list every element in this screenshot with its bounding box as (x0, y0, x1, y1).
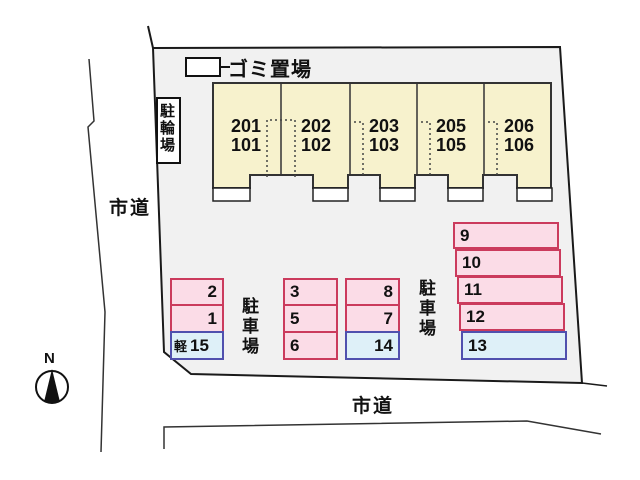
space-number: 7 (384, 309, 398, 329)
unit-lower-number: 105 (419, 136, 483, 155)
site-boundary-extension-top (148, 26, 153, 48)
entrance-porch (448, 188, 483, 201)
parking-space-5: 5 (283, 304, 338, 333)
unit-label-202-102: 202 102 (284, 117, 348, 155)
entrance-porch (213, 188, 250, 201)
unit-upper-number: 202 (284, 117, 348, 136)
parking-space-9: 9 (453, 222, 559, 249)
parking-space-11: 11 (457, 276, 563, 304)
road-edge-left-line (88, 59, 105, 452)
space-number: 11 (459, 280, 482, 300)
space-number: 14 (374, 336, 398, 356)
parking-lot-label-left: 駐車場 (240, 297, 257, 357)
space-number: 12 (461, 307, 485, 327)
unit-label-203-103: 203 103 (352, 117, 416, 155)
garbage-area-label: ゴミ置場 (228, 53, 312, 82)
unit-upper-number: 205 (419, 117, 483, 136)
unit-upper-number: 201 (214, 117, 278, 136)
space-number: 13 (463, 336, 487, 356)
space-number: 1 (208, 309, 222, 329)
parking-space-13: 13 (461, 331, 567, 360)
space-number: 5 (285, 309, 299, 329)
unit-lower-number: 102 (284, 136, 348, 155)
parking-space-8: 8 (345, 278, 400, 306)
parking-space-10: 10 (455, 249, 561, 277)
unit-lower-number: 103 (352, 136, 416, 155)
road-label-bottom: 市道 (352, 391, 394, 418)
entrance-porch (313, 188, 348, 201)
unit-lower-number: 101 (214, 136, 278, 155)
bicycle-parking-label: 駐輪場 (159, 103, 174, 154)
unit-lower-number: 106 (487, 136, 551, 155)
space-number: 2 (208, 282, 222, 302)
space-number: 10 (457, 253, 481, 273)
north-arrow-icon (44, 369, 60, 402)
parking-space-7: 7 (345, 304, 400, 333)
unit-label-205-105: 205 105 (419, 117, 483, 155)
parking-lot-label-right: 駐車場 (417, 279, 434, 339)
parking-space-15-kei: 軽 15 (170, 331, 224, 360)
site-boundary-extension-right (582, 383, 607, 386)
entrance-porch (380, 188, 415, 201)
parking-space-12: 12 (459, 303, 565, 331)
parking-space-2: 2 (170, 278, 224, 306)
parking-space-14: 14 (345, 331, 400, 360)
kei-prefix: 軽 (172, 336, 187, 355)
road-edge-bottom-line (164, 421, 601, 449)
space-number: 9 (455, 226, 469, 246)
space-number: 15 (190, 336, 209, 356)
parking-space-6: 6 (283, 331, 338, 360)
compass-north-label: N (44, 350, 55, 367)
space-number: 6 (285, 336, 299, 356)
unit-label-206-106: 206 106 (487, 117, 551, 155)
garbage-box-icon (186, 58, 220, 76)
parking-space-3: 3 (283, 278, 338, 306)
unit-label-201-101: 201 101 (214, 117, 278, 155)
road-label-left: 市道 (109, 193, 151, 220)
unit-upper-number: 203 (352, 117, 416, 136)
parking-space-1: 1 (170, 304, 224, 333)
entrance-porch (517, 188, 552, 201)
space-number: 8 (384, 282, 398, 302)
space-number: 3 (285, 282, 299, 302)
site-plan: ゴミ置場 駐輪場 市道 市道 N 駐車場 駐車場 201 101 202 102… (0, 0, 640, 480)
unit-upper-number: 206 (487, 117, 551, 136)
